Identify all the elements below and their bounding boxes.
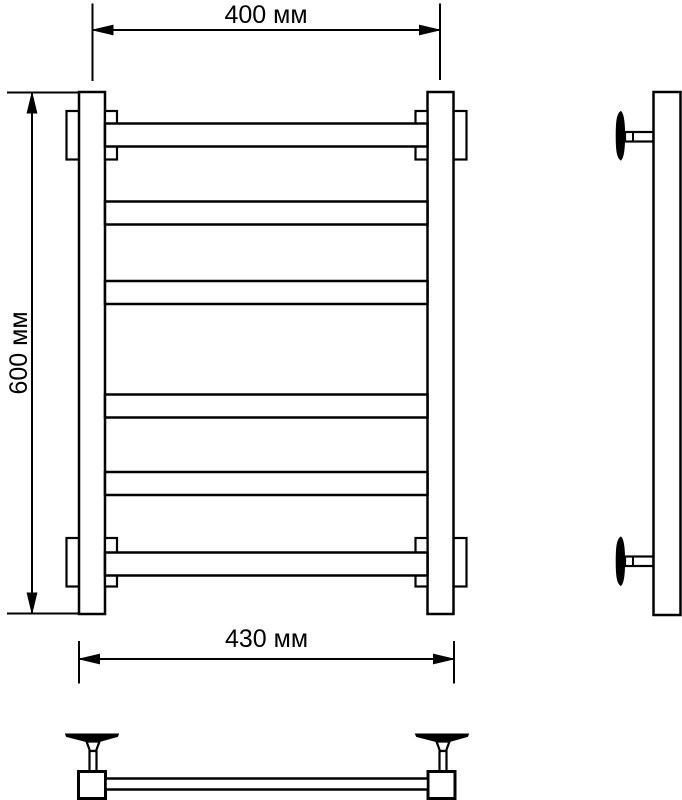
side-flange-bottom (616, 537, 624, 586)
dim600-label: 600 мм (5, 311, 33, 394)
dim600-arrow-up-icon (27, 93, 37, 113)
wall-bracket-bottom-left (67, 538, 80, 587)
rung-4 (105, 395, 428, 418)
dim600-arrow-down-icon (27, 593, 37, 613)
side-flange-top (616, 112, 624, 161)
dim400-arrow-left-icon (93, 25, 113, 35)
technical-drawing-canvas: 600 мм 400 мм (0, 0, 682, 800)
top-stem-right (440, 751, 447, 772)
top-flange-left (66, 734, 119, 742)
side-arm-top (625, 132, 654, 142)
dim430-arrow-left-icon (80, 654, 100, 664)
dim430-label: 430 мм (225, 625, 308, 653)
top-cone-right (437, 742, 450, 752)
dim400-arrow-right-icon (420, 25, 440, 35)
post-left (79, 92, 105, 614)
rung-5 (105, 472, 428, 495)
drawing-page: 600 мм 400 мм (0, 0, 682, 800)
side-arm-bottom (625, 557, 654, 567)
wall-bracket-top-left (67, 111, 80, 160)
rung-1 (105, 124, 428, 147)
top-cone-left (87, 742, 100, 752)
top-view (66, 734, 469, 799)
wall-bracket-bottom-right (454, 538, 467, 587)
side-post (654, 92, 681, 615)
rung-2 (105, 202, 428, 225)
front-view (67, 92, 467, 614)
side-view (616, 92, 680, 615)
post-right (428, 92, 454, 614)
top-flange-right (416, 734, 469, 742)
top-bar (106, 779, 429, 790)
dimension-400: 400 мм (93, 1, 441, 81)
rung-6 (105, 553, 428, 576)
top-block-left (79, 772, 106, 799)
dim400-label: 400 мм (224, 1, 307, 29)
top-stem-left (90, 751, 97, 772)
dim430-arrow-right-icon (434, 654, 454, 664)
rung-3 (105, 281, 428, 304)
top-block-right (428, 772, 455, 799)
dimension-430: 430 мм (79, 625, 454, 684)
wall-bracket-top-right (454, 111, 467, 160)
